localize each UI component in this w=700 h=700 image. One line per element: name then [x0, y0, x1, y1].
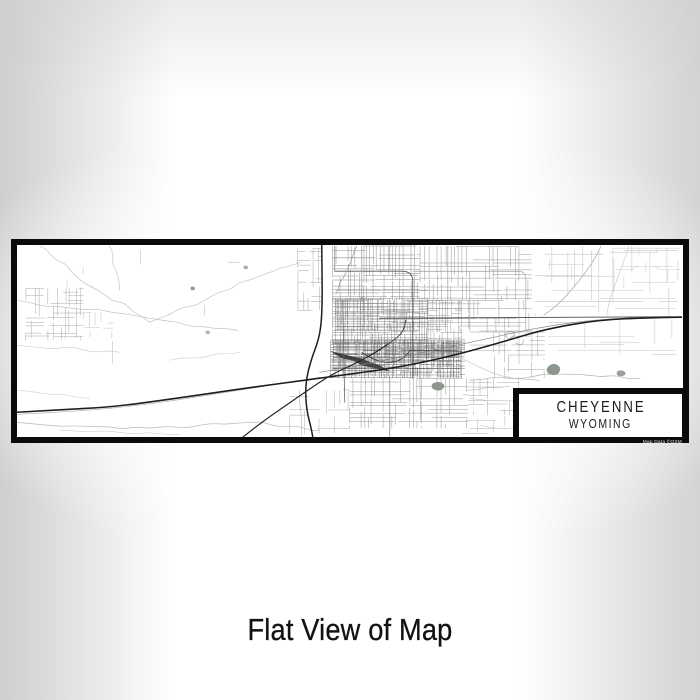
svg-text:Map Data ©OSM: Map Data ©OSM — [643, 437, 682, 444]
